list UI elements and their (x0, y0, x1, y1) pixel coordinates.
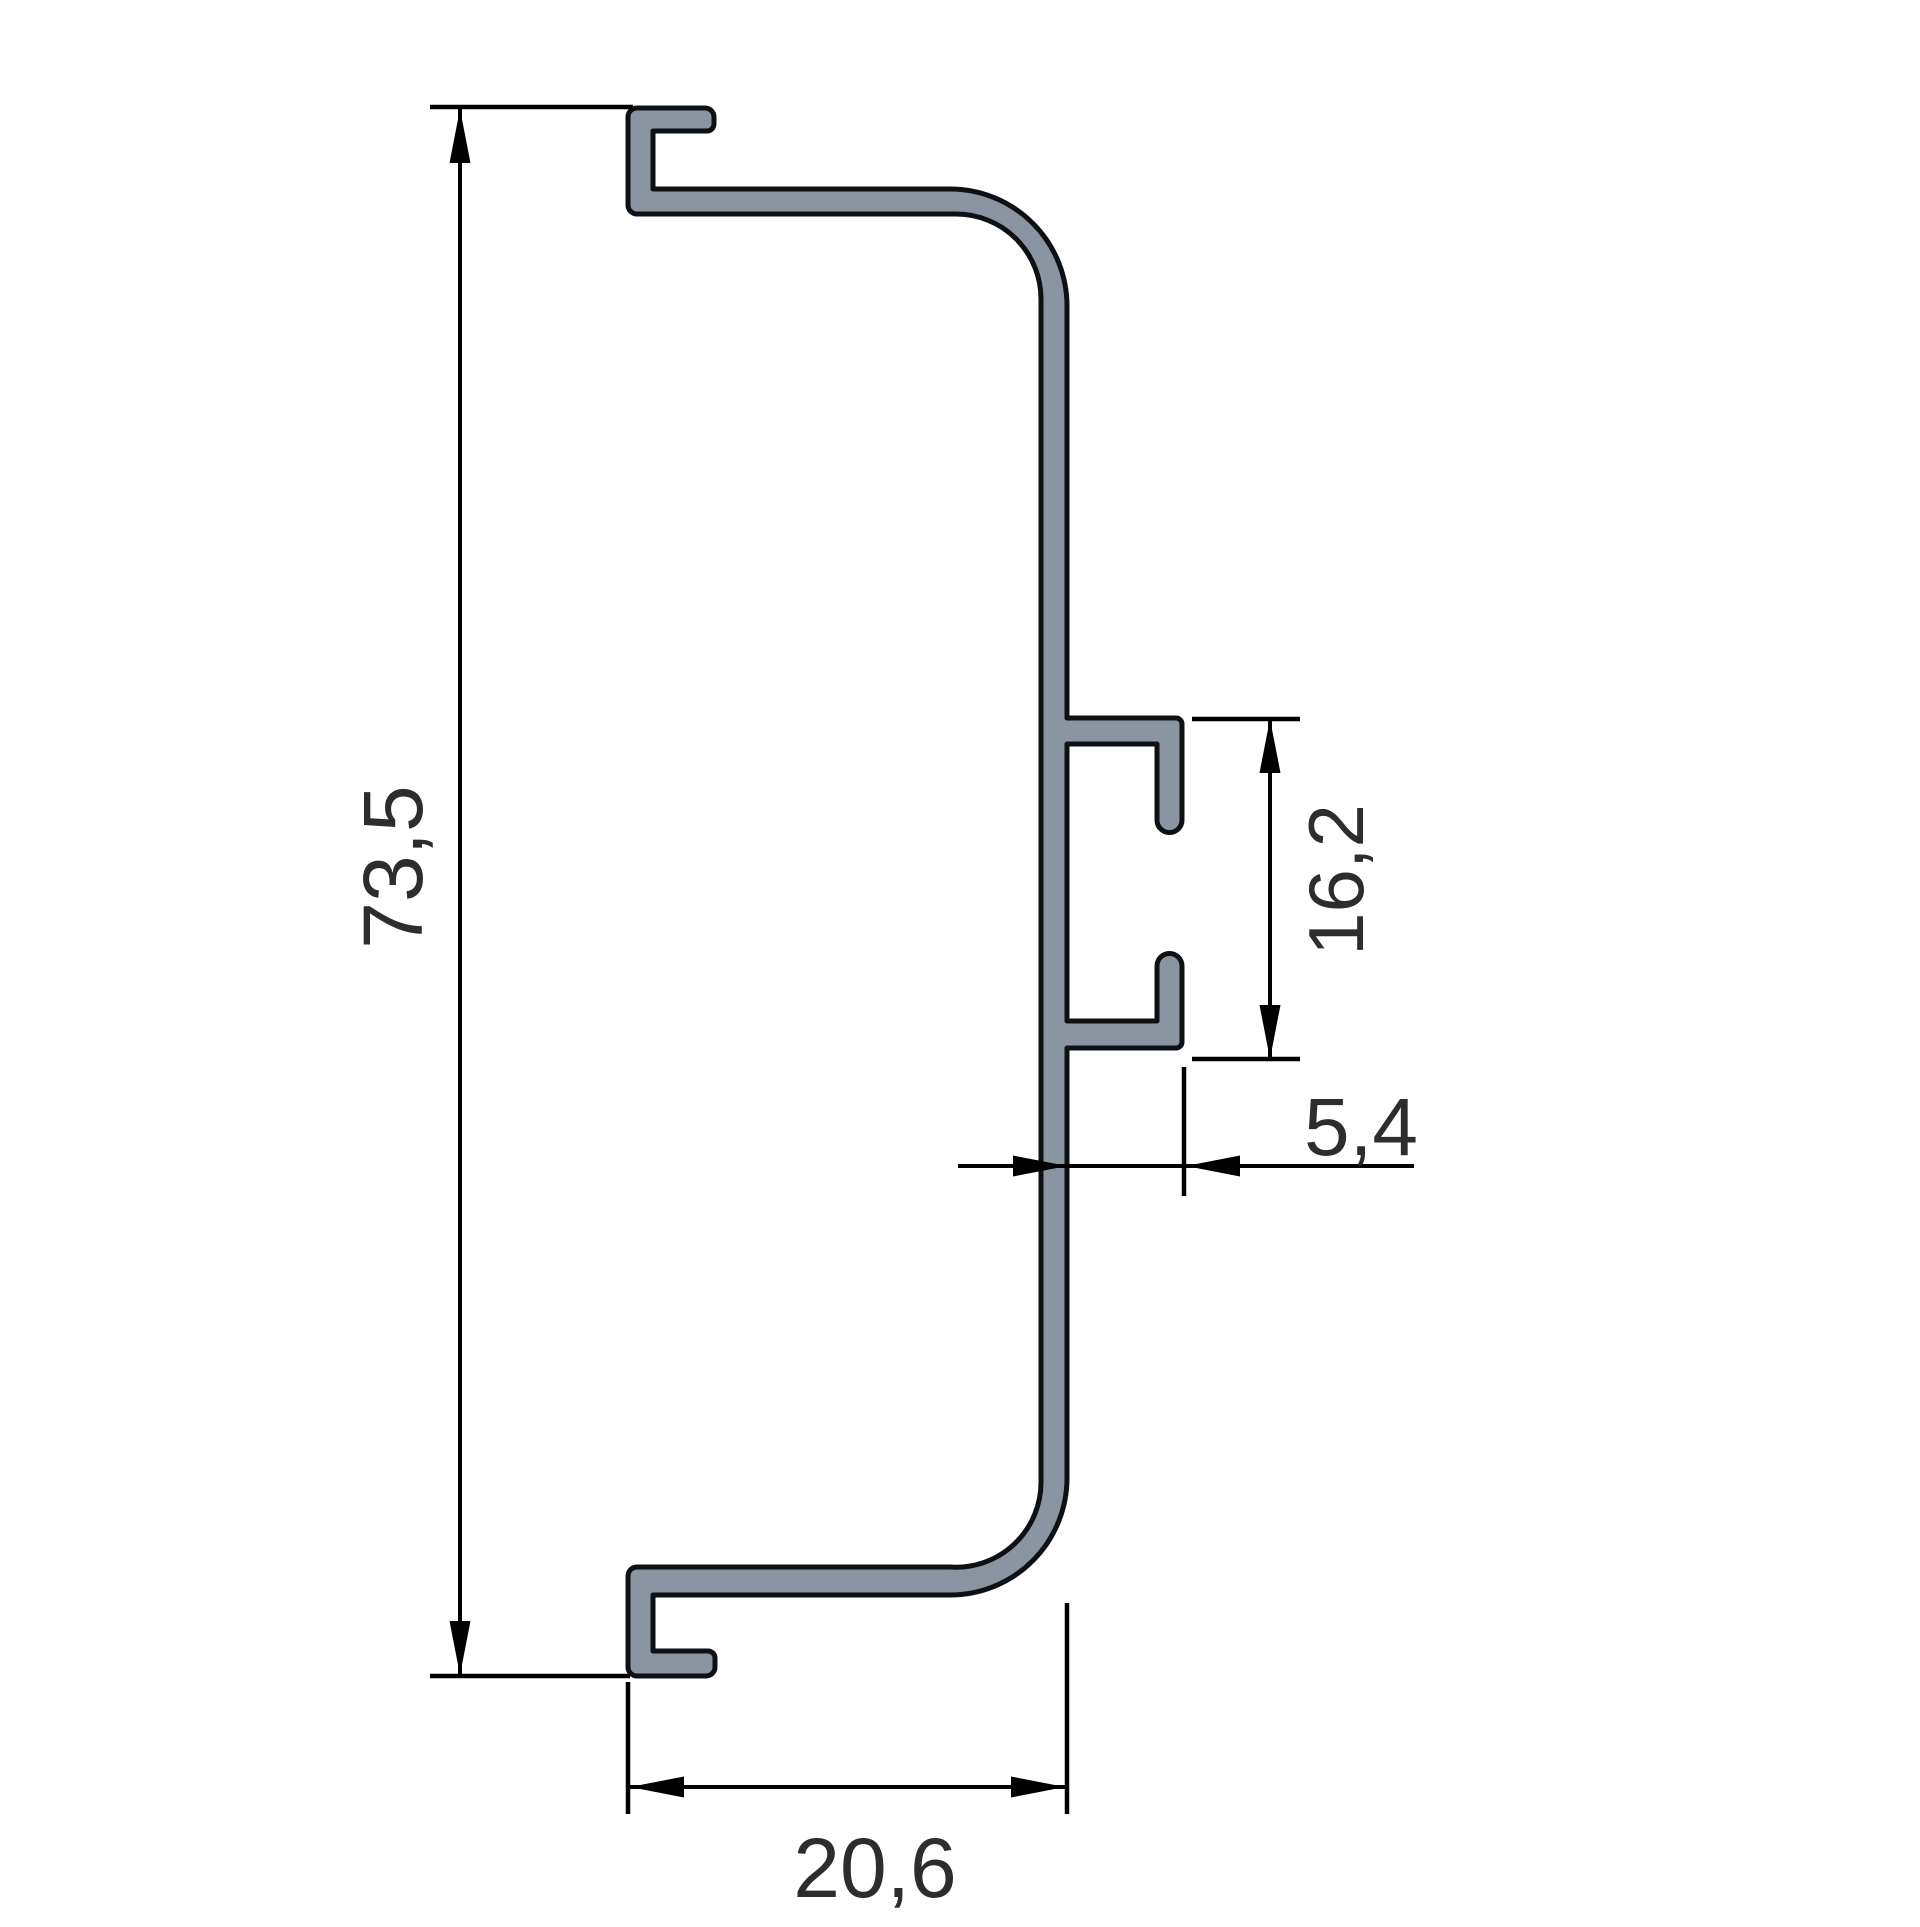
svg-text:16,2: 16,2 (1292, 804, 1380, 956)
svg-text:5,4: 5,4 (1304, 1082, 1418, 1173)
svg-text:20,6: 20,6 (793, 1821, 957, 1915)
svg-text:73,5: 73,5 (346, 785, 440, 949)
